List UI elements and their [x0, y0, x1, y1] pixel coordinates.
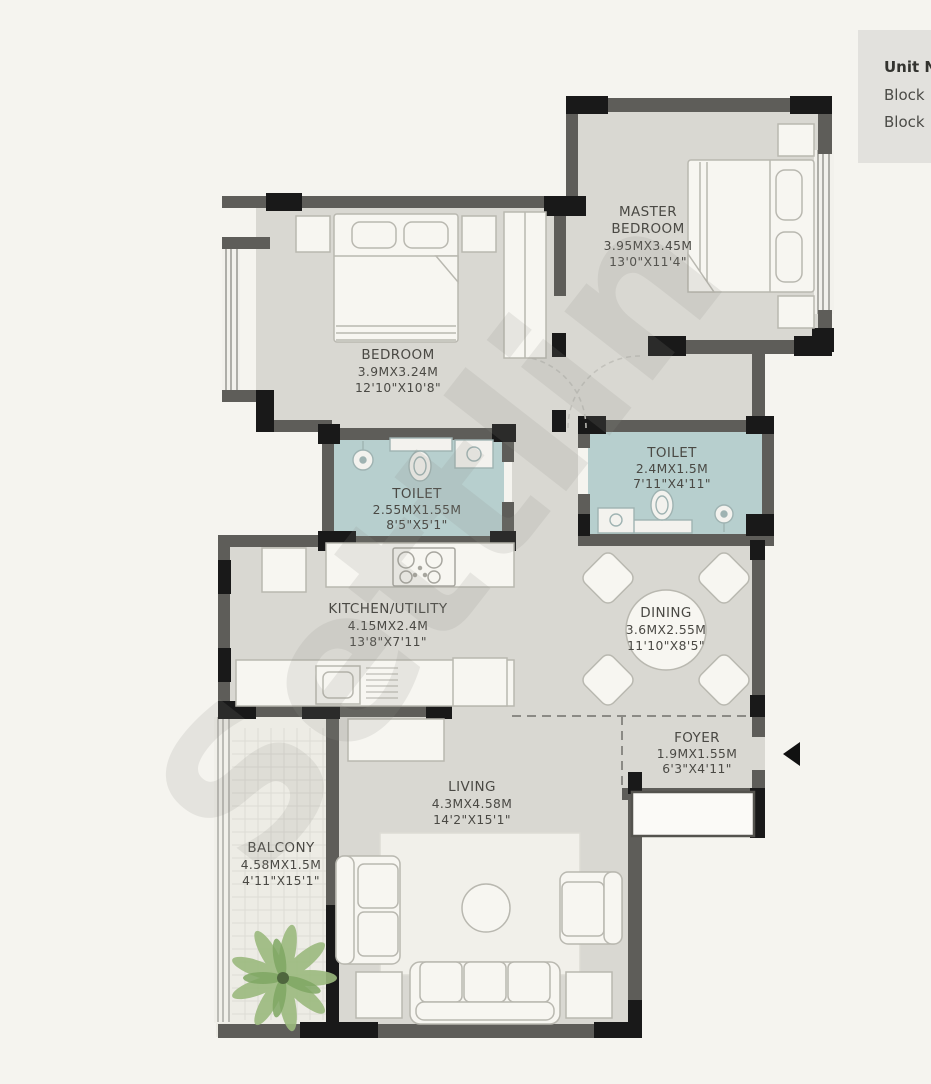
sofa-two-seater — [336, 856, 400, 964]
bedroom-window — [222, 248, 240, 390]
svg-text:2.4MX1.5M: 2.4MX1.5M — [636, 462, 708, 476]
svg-text:BEDROOM: BEDROOM — [611, 221, 684, 237]
svg-text:KITCHEN/UTILITY: KITCHEN/UTILITY — [328, 601, 448, 617]
svg-text:4.58MX1.5M: 4.58MX1.5M — [241, 858, 322, 872]
svg-text:FOYER: FOYER — [674, 730, 720, 746]
svg-text:MASTER: MASTER — [619, 204, 677, 220]
svg-text:14'2"X15'1": 14'2"X15'1" — [433, 813, 511, 827]
kitchen-counter-top — [326, 543, 514, 587]
balcony-window — [214, 717, 230, 1023]
floor-plan-page: MASTER BEDROOM 3.95MX3.45M 13'0"X11'4" B… — [0, 0, 931, 1080]
side-table — [356, 972, 402, 1018]
side-table — [566, 972, 612, 1018]
coffee-table — [462, 884, 510, 932]
svg-text:8'5"X5'1": 8'5"X5'1" — [386, 518, 447, 532]
washbasin-icon — [598, 508, 634, 533]
cistern — [390, 438, 452, 451]
tv-console — [348, 719, 444, 761]
svg-text:TOILET: TOILET — [391, 486, 442, 502]
nightstand — [778, 124, 814, 156]
svg-text:12'10"X10'8": 12'10"X10'8" — [355, 381, 441, 395]
svg-text:1.9MX1.55M: 1.9MX1.55M — [657, 747, 738, 761]
floor-plan: MASTER BEDROOM 3.95MX3.45M 13'0"X11'4" B… — [0, 0, 931, 1080]
entrance-arrow-icon — [783, 742, 800, 766]
svg-text:3.95MX3.45M: 3.95MX3.45M — [604, 239, 693, 253]
svg-text:13'0"X11'4": 13'0"X11'4" — [609, 255, 687, 269]
master-window — [814, 150, 834, 314]
nightstand — [462, 216, 496, 252]
fridge — [262, 548, 306, 592]
unit-info-line-2: Block — [884, 113, 931, 131]
svg-text:LIVING: LIVING — [448, 779, 496, 795]
svg-text:3.9MX3.24M: 3.9MX3.24M — [358, 365, 439, 379]
nightstand — [296, 216, 330, 252]
wc-icon — [409, 451, 431, 481]
unit-info-box: Unit N Block Block — [858, 30, 931, 163]
svg-text:TOILET: TOILET — [646, 445, 697, 461]
label-bedroom: BEDROOM 3.9MX3.24M 12'10"X10'8" — [355, 347, 441, 395]
svg-text:4.15MX2.4M: 4.15MX2.4M — [348, 619, 429, 633]
svg-text:4'11"X15'1": 4'11"X15'1" — [242, 874, 320, 888]
svg-text:4.3MX4.58M: 4.3MX4.58M — [432, 797, 513, 811]
label-balcony: BALCONY 4.58MX1.5M 4'11"X15'1" — [241, 840, 322, 888]
kitchen-cabinet — [453, 658, 507, 706]
entry-niche — [632, 792, 754, 836]
svg-text:11'10"X8'5": 11'10"X8'5" — [627, 639, 705, 653]
svg-text:2.55MX1.55M: 2.55MX1.55M — [373, 503, 462, 517]
svg-text:BEDROOM: BEDROOM — [361, 347, 434, 363]
nightstand — [778, 296, 814, 328]
cistern — [632, 520, 692, 533]
washbasin-icon — [455, 440, 493, 468]
svg-text:BALCONY: BALCONY — [247, 840, 315, 856]
sofa-three-seater — [410, 962, 560, 1024]
svg-text:7'11"X4'11": 7'11"X4'11" — [633, 477, 711, 491]
bedroom-bed — [296, 212, 546, 358]
svg-text:DINING: DINING — [640, 605, 691, 621]
unit-info-line-1: Block — [884, 86, 931, 104]
svg-text:3.6MX2.55M: 3.6MX2.55M — [626, 623, 707, 637]
wc-icon — [651, 490, 673, 520]
svg-text:13'8"X7'11": 13'8"X7'11" — [349, 635, 427, 649]
svg-text:6'3"X4'11": 6'3"X4'11" — [662, 762, 732, 776]
armchair — [560, 872, 622, 944]
unit-info-title: Unit N — [884, 58, 931, 76]
